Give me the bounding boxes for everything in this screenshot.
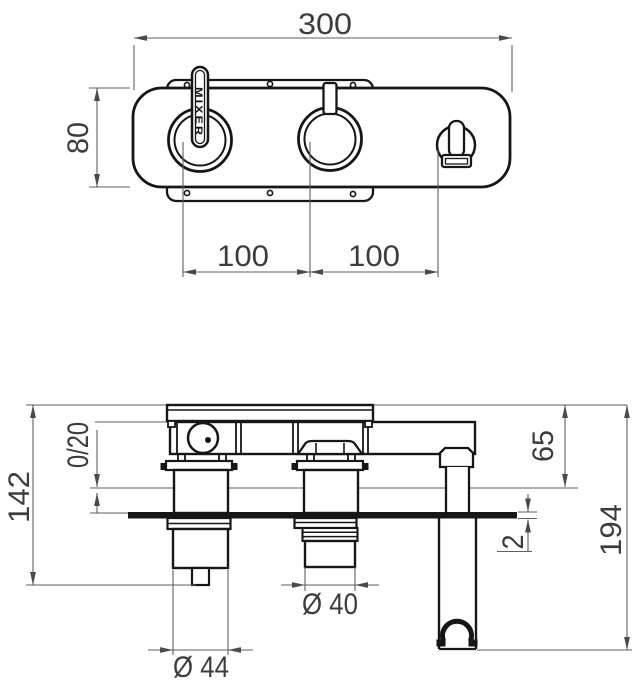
mixer-label: MIXER xyxy=(193,87,204,137)
valve-body xyxy=(167,405,475,454)
cartridge-port xyxy=(188,423,218,453)
screw-icon xyxy=(350,82,355,87)
flow-handle-stem xyxy=(324,83,337,114)
cartridge-collars xyxy=(161,461,369,470)
dim-plate-thickness: 2 xyxy=(497,494,537,552)
middle-valve-cap xyxy=(298,441,362,454)
dim-label-total-depth: 142 xyxy=(3,471,36,523)
screw-icon xyxy=(184,82,189,87)
shower-outlet xyxy=(440,448,473,513)
middle-cartridge-sleeve xyxy=(304,470,358,513)
diverter-pull xyxy=(449,121,464,157)
left-cartridge-stem xyxy=(192,568,209,585)
dim-label-holder-length: 194 xyxy=(595,504,628,556)
dim-total-depth: 142 xyxy=(3,405,196,585)
diverter-tab xyxy=(442,155,471,167)
screw-icon xyxy=(267,190,272,195)
dim-label-right-spacing: 100 xyxy=(348,240,400,273)
outlet-fitting xyxy=(440,448,473,467)
dim-left-diameter: Ø 44 xyxy=(148,570,253,682)
dim-label-outlet-offset: 65 xyxy=(527,430,560,462)
dim-label-middle-diameter: Ø 40 xyxy=(302,588,358,621)
middle-cartridge-front xyxy=(295,518,358,567)
drawing-canvas: 300 80 MIXER xyxy=(0,0,634,682)
dim-label-overall-height: 80 xyxy=(62,122,95,154)
dim-label-left-diameter: Ø 44 xyxy=(173,651,229,682)
dim-label-overall-width: 300 xyxy=(298,8,352,41)
port-dot-icon xyxy=(205,437,211,443)
dim-overall-height: 80 xyxy=(62,88,130,187)
dim-label-plate-thickness: 2 xyxy=(497,535,530,550)
dim-label-adjustment-range: 0/20 xyxy=(62,422,95,468)
section-view: 142 0/20 65 2 194 xyxy=(3,405,632,682)
left-cartridge-front xyxy=(168,518,231,585)
dim-adjustment-range: 0/20 xyxy=(62,422,97,513)
screw-icon xyxy=(184,190,189,195)
screw-icon xyxy=(267,81,272,86)
holder-hook-icon xyxy=(443,621,472,641)
left-cartridge-sleeve xyxy=(174,470,228,513)
dim-outlet-offset: 65 xyxy=(527,405,565,487)
top-view: 300 80 MIXER xyxy=(62,8,512,277)
dim-middle-diameter: Ø 40 xyxy=(281,567,379,621)
technical-drawing: 300 80 MIXER xyxy=(0,0,634,682)
mounting-bar xyxy=(167,405,373,421)
screw-icon xyxy=(350,191,355,196)
dim-label-left-spacing: 100 xyxy=(217,240,269,273)
handshower-holder xyxy=(437,514,478,649)
